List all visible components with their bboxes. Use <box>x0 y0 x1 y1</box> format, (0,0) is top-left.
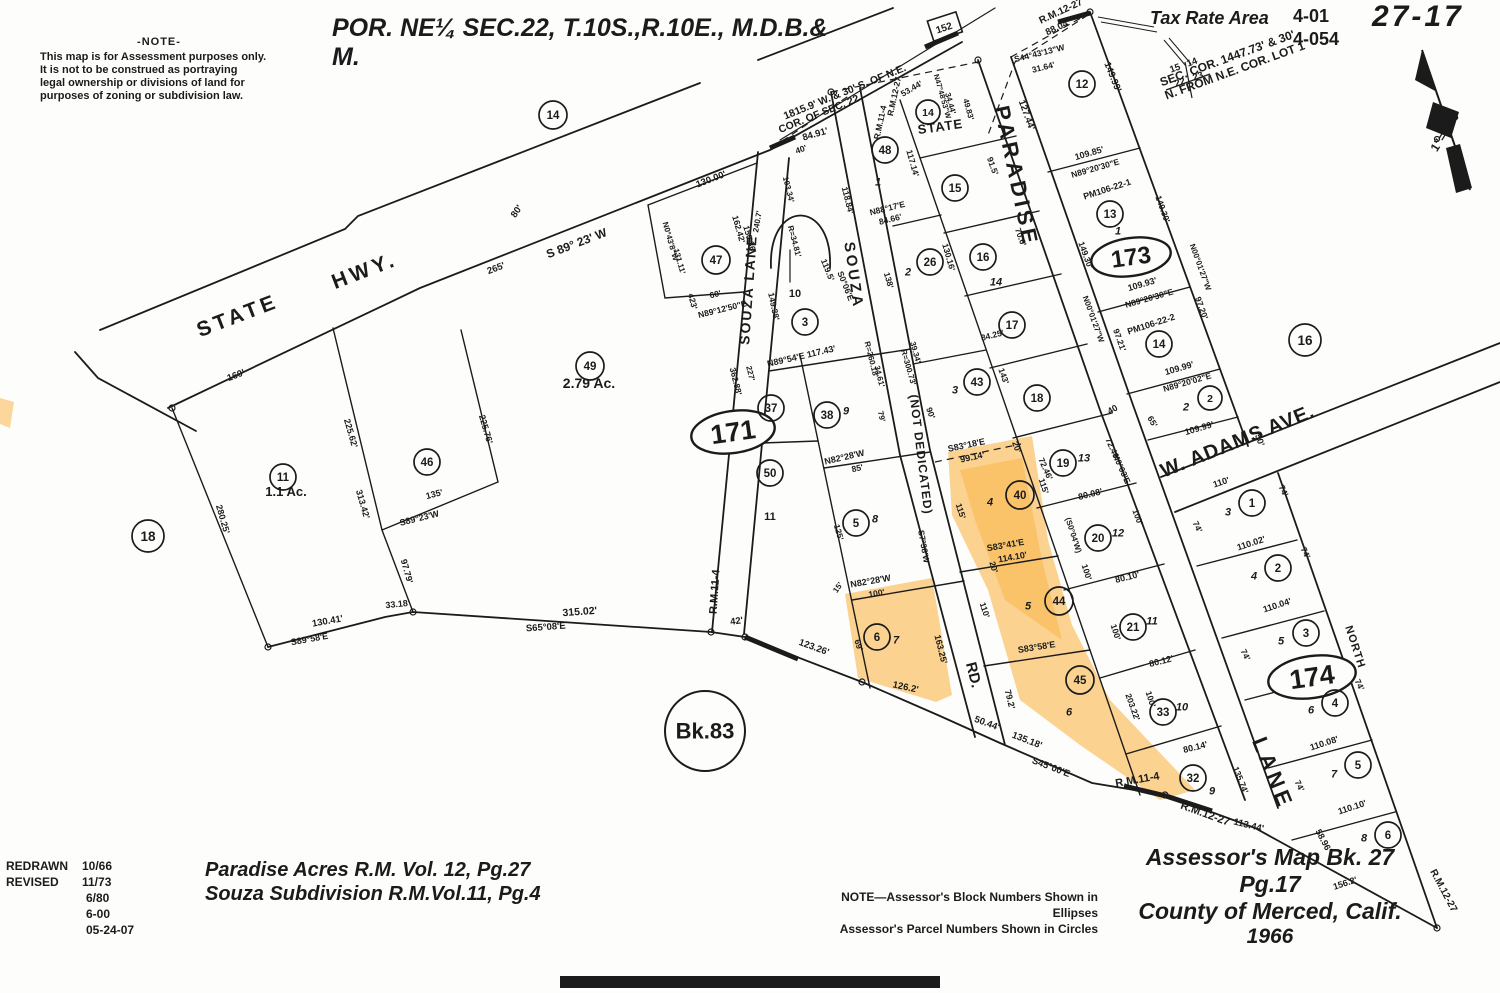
lot-number: 13 <box>1078 453 1090 465</box>
parcel-number: 38 <box>821 410 834 422</box>
parcel-number: 43 <box>971 377 984 389</box>
lot-number: 11 <box>1146 616 1157 628</box>
parcel-number: 26 <box>924 257 937 269</box>
parcel-circle-19: 1913 <box>1050 450 1090 476</box>
credit-line: Assessor's Map Bk. 27 Pg.17 <box>1118 844 1422 898</box>
map-label: 123.26' <box>797 637 830 658</box>
map-label: 149.99' <box>1101 60 1123 93</box>
map-label: 84.25' <box>980 327 1005 342</box>
map-label: 72.46' <box>1103 436 1122 461</box>
map-label: S45°00'E <box>1030 755 1071 780</box>
map-label: 74' <box>1277 483 1291 498</box>
map-label: 80.12' <box>1148 653 1174 669</box>
parcel-number: 17 <box>1006 320 1019 332</box>
parcel-circle-37: 37 <box>758 395 784 421</box>
map-label: RD. <box>962 660 985 689</box>
parcel-number: 20 <box>1092 533 1105 545</box>
map-label: 85' <box>851 462 864 474</box>
map-label: 109.99' <box>1164 359 1195 377</box>
parcel-number: 44 <box>1053 596 1066 608</box>
revised-date: 6-00 <box>6 906 152 922</box>
parcel-circle-14: 14 <box>1146 331 1172 357</box>
lot-number: 7 <box>1331 769 1338 781</box>
map-title: POR. NE¼ SEC.22, T.10S.,R.10E., M.D.B.& … <box>332 14 832 72</box>
parcel-circle-47: 47 <box>702 246 730 274</box>
reference-line: Souza Subdivision R.M.Vol.11, Pg.4 <box>205 882 541 906</box>
lot-number: 6 <box>1308 705 1315 717</box>
map-label: 80.10' <box>1114 569 1140 585</box>
parcel-circle-3: 3 <box>792 309 818 335</box>
parcel-circle-43: 433 <box>952 369 990 397</box>
note-title: -NOTE- <box>40 36 278 49</box>
map-label: R.M.12-27 <box>1427 868 1459 915</box>
parcel-number: 5 <box>1355 760 1362 772</box>
map-label: 130.00' <box>695 169 728 190</box>
parcel-number: 6 <box>874 632 880 644</box>
map-label: S44°43'13"W <box>1013 42 1066 64</box>
parcel-circle-5: 57 <box>1331 752 1371 781</box>
redrawn-label: REDRAWN <box>6 858 82 874</box>
parcel-number: 1 <box>1249 498 1256 510</box>
subdivision-references: Paradise Acres R.M. Vol. 12, Pg.27 Souza… <box>205 858 541 906</box>
revised-date: 11/73 <box>82 874 152 890</box>
parcel-number: 13 <box>1104 209 1117 221</box>
map-label: R.M.12-27 <box>1179 800 1231 829</box>
map-label: 227' <box>744 365 756 382</box>
map-label: 149.30' <box>1153 194 1172 224</box>
map-label: 74' <box>1299 545 1313 560</box>
map-label: 74' <box>1293 778 1307 793</box>
map-label: 42' <box>730 615 744 628</box>
credit-line: 1966 <box>1118 925 1422 949</box>
parcel-circle-2: 22 <box>1182 386 1222 414</box>
lot-number: 1 <box>1115 226 1121 238</box>
reference-line: Paradise Acres R.M. Vol. 12, Pg.27 <box>205 858 541 882</box>
map-label: 74' <box>1353 677 1367 692</box>
map-label: R.M.11-4 <box>707 568 722 614</box>
parcel-number: 15 <box>949 183 962 195</box>
note-line: It is not to be construed as portraying <box>40 64 278 77</box>
bottom-scan-bar <box>560 976 940 988</box>
parcel-circle-12: 12 <box>1069 71 1095 97</box>
map-label: S65°08'E <box>526 621 567 635</box>
parcel-circle-48: 481 <box>872 137 898 189</box>
map-label: 74' <box>1239 647 1253 662</box>
parcel-circle-38: 389 <box>814 402 850 428</box>
lot-number: 4 <box>1250 571 1257 583</box>
lot-number: 5 <box>1025 601 1032 613</box>
lot-number: 8 <box>872 514 879 526</box>
parcel-number: 16 <box>977 252 990 264</box>
lot-number: 3 <box>952 385 958 397</box>
map-label: 265' <box>486 260 507 277</box>
lot-number: 14 <box>990 277 1002 289</box>
lot-number: 8 <box>1361 833 1368 845</box>
map-label: R=34.81' <box>786 225 803 259</box>
map-label: 65' <box>1145 414 1159 429</box>
map-label: 74' <box>1191 519 1205 534</box>
parcel-number: 14 <box>922 107 934 119</box>
note-line: purposes of zoning or subdivision law. <box>40 90 278 103</box>
tax-rate-area-label: Tax Rate Area <box>1150 8 1269 29</box>
map-label: 240.7' <box>751 210 764 233</box>
parcel-number: 6 <box>1385 830 1391 842</box>
parcel-number: 45 <box>1074 675 1087 687</box>
lot-number: 6 <box>1066 707 1073 719</box>
map-label: 97.20' <box>1193 295 1210 320</box>
parcel-number: 46 <box>421 457 434 469</box>
revised-date: 05-24-07 <box>6 922 152 938</box>
parcel-circle-16: 16 <box>970 244 996 270</box>
map-label: 80.14' <box>1182 739 1208 755</box>
map-label: 110.04' <box>1262 596 1293 615</box>
map-label: N00°01'27"W <box>1188 243 1213 292</box>
map-label: 313.42' <box>354 489 372 520</box>
parcel-circle-18: 18 <box>1024 385 1050 411</box>
lot-number: 12 <box>1112 528 1124 540</box>
map-label: PM106-22-1 <box>1082 177 1132 202</box>
lot-number: 1 <box>875 177 881 189</box>
parcel-circle-13: 131 <box>1097 201 1123 238</box>
map-labels: STATEHWY.SOUZA LANESOUZA(NOT DEDICATED)R… <box>194 0 1464 914</box>
block-number: 171 <box>709 414 758 450</box>
map-label: 100' <box>1144 690 1159 709</box>
map-label: LANE <box>1247 733 1299 813</box>
map-label: STATE <box>917 116 964 137</box>
map-label: 118.84' <box>840 186 856 215</box>
map-label: 109.85' <box>1074 144 1105 162</box>
map-label: 80' <box>509 203 525 220</box>
map-label: 110' <box>1212 475 1231 490</box>
map-label: 130.41' <box>311 613 344 629</box>
parcel-number: 47 <box>710 255 723 267</box>
map-label: 131.11' <box>672 248 688 275</box>
lot-number: 7 <box>893 635 900 647</box>
redrawn-date: 10/66 <box>82 858 152 874</box>
parcel-number: 12 <box>1076 79 1089 91</box>
parcel-circle-2: 24 <box>1250 555 1291 583</box>
revised-label: REVISED <box>6 874 82 890</box>
map-label: 79.2' <box>1003 689 1017 711</box>
lot-number: 4 <box>986 497 993 509</box>
map-label: 109.99' <box>1184 419 1215 437</box>
map-label: 50.44' <box>973 714 1001 733</box>
parcel-number: 48 <box>879 145 892 157</box>
map-credit: Assessor's Map Bk. 27 Pg.17 County of Me… <box>1118 844 1422 949</box>
parcel-number: 32 <box>1187 773 1200 785</box>
assessor-map-page: { "header": { "title": "POR. NE¼ SEC.22,… <box>0 0 1500 993</box>
parcel-circle-16: 16 <box>1289 324 1321 356</box>
legend-note: NOTE—Assessor's Block Numbers Shown in E… <box>820 889 1098 937</box>
map-label: 315.02' <box>562 605 597 619</box>
map-label: 135.74' <box>1231 765 1251 795</box>
map-label: HWY. <box>329 248 401 294</box>
parcel-number: 4 <box>1332 698 1339 710</box>
highlight-edge-left <box>0 398 14 428</box>
map-label: 119.5' <box>819 257 837 282</box>
parcel-number: 3 <box>802 317 808 329</box>
parcel-circle-5: 58 <box>843 510 879 536</box>
parcel-number: 14 <box>547 110 560 122</box>
parcel-number: 49 <box>584 361 597 373</box>
parcel-circle-3: 35 <box>1278 620 1319 648</box>
parcel-number: 18 <box>1031 393 1044 405</box>
map-label: 15' <box>831 580 845 594</box>
lot-number: 5 <box>1278 636 1285 648</box>
map-label: 225.62' <box>342 418 360 449</box>
map-label: 91.5' <box>985 156 1001 177</box>
lot-number: 3 <box>1225 507 1231 519</box>
map-label: 100' <box>1130 508 1145 527</box>
map-label: 135.18' <box>1010 730 1043 751</box>
lot-number: 10 <box>1176 702 1189 714</box>
parcel-circle-14: 14 <box>539 101 567 129</box>
lot-number: 9 <box>1209 786 1216 798</box>
lot-number: 2 <box>1182 402 1189 414</box>
parcel-circle-26: 262 <box>904 249 943 279</box>
book-circle: Bk.83 <box>665 691 745 771</box>
map-label: 11 <box>764 511 776 523</box>
note-line: This map is for Assessment purposes only… <box>40 51 278 64</box>
map-label: S89°23'W <box>399 508 441 528</box>
block-number: 174 <box>1288 659 1337 695</box>
parcel-circle-1: 13 <box>1225 490 1265 519</box>
parcel-number: 5 <box>853 518 860 530</box>
legend-note-line: Assessor's Parcel Numbers Shown in Circl… <box>820 921 1098 937</box>
block-number: 173 <box>1109 241 1152 273</box>
lot-number: 9 <box>843 406 850 418</box>
map-label: N89°54'E 117.43' <box>766 343 836 368</box>
map-label: 80.08' <box>1077 486 1103 502</box>
parcel-number: 21 <box>1127 622 1140 634</box>
map-label: 100' <box>1109 623 1124 642</box>
map-label: 135' <box>425 487 444 501</box>
map-label: 109.93' <box>1127 275 1158 293</box>
parcel-circle-20: 2012 <box>1085 525 1124 551</box>
parcel-circle-15: 15 <box>942 175 968 201</box>
map-label: 49.83' <box>961 98 976 122</box>
lot-number: 2 <box>904 267 911 279</box>
parcel-number: 3 <box>1303 628 1309 640</box>
parcel-circle-50: 50 <box>757 460 783 486</box>
note-line: legal ownership or divisions of land for <box>40 77 278 90</box>
map-label: 60' <box>708 288 722 300</box>
map-label: 225.76' <box>477 414 495 445</box>
revision-block: REDRAWN 10/66 REVISED 11/73 6/80 6-00 05… <box>6 858 152 938</box>
block-ellipse-173: 173 <box>1089 233 1174 282</box>
block-ellipse-174: 174 <box>1266 650 1359 704</box>
book-number: Bk.83 <box>676 718 735 743</box>
map-label: 362.88' <box>728 366 744 396</box>
map-label: R.M.12-27 <box>885 76 903 117</box>
map-label: 103.34' <box>781 176 796 204</box>
parcel-number: 19 <box>1057 458 1070 470</box>
map-label: S 89° 23' W <box>544 225 609 261</box>
parcel-number: 33 <box>1157 707 1170 719</box>
parcel-number: 14 <box>1153 339 1166 351</box>
map-label: S7°38'W <box>916 529 932 564</box>
map-label: 2.79 Ac. <box>563 375 615 391</box>
map-label: 143' <box>996 367 1011 386</box>
map-label: 100' <box>1080 563 1095 582</box>
map-label: 149.38' <box>766 292 782 321</box>
parcel-number: 2 <box>1207 393 1213 405</box>
map-label: 110' <box>978 601 992 619</box>
map-label: 53.44' <box>899 78 924 98</box>
map-label: (S0°04'W) <box>1063 516 1083 554</box>
map-label: 138' <box>882 271 896 289</box>
parcel-number: 37 <box>765 403 778 415</box>
parcel-circle-18: 18 <box>132 520 164 552</box>
revised-date: 6/80 <box>6 890 152 906</box>
map-label: 31.64' <box>1031 59 1056 74</box>
parcel-number: 50 <box>764 468 777 480</box>
map-label: 79' <box>876 410 887 423</box>
parcel-number: 40 <box>1014 490 1027 502</box>
map-label: R.M.11-4 <box>872 104 889 140</box>
map-label: 33.18' <box>385 598 411 611</box>
assessment-note: -NOTE- This map is for Assessment purpos… <box>40 36 278 103</box>
map-label: 160' <box>226 367 247 384</box>
map-label: 84.91' <box>801 126 829 144</box>
map-label: 90' <box>924 406 937 420</box>
map-label: S89°58'E <box>290 631 329 647</box>
parcel-circle-46: 46 <box>414 449 440 475</box>
parcel-number: 2 <box>1275 563 1281 575</box>
map-label: 40' <box>794 143 808 156</box>
legend-note-line: NOTE—Assessor's Block Numbers Shown in E… <box>820 889 1098 921</box>
map-label: 113.44' <box>1232 817 1265 835</box>
map-label: 1.1 Ac. <box>265 484 306 499</box>
parcel-circle-21: 2111 <box>1120 614 1158 640</box>
credit-line: County of Merced, Calif. <box>1118 898 1422 925</box>
parcel-number: 18 <box>140 529 156 544</box>
parcel-number: 11 <box>277 472 290 484</box>
map-label: 110.10' <box>1337 798 1368 817</box>
parcel-number: 16 <box>1297 333 1313 348</box>
map-label: W. ADAMS AVE. <box>1157 400 1318 482</box>
map-label: 10 <box>789 288 801 300</box>
map-label: STATE <box>194 290 282 342</box>
